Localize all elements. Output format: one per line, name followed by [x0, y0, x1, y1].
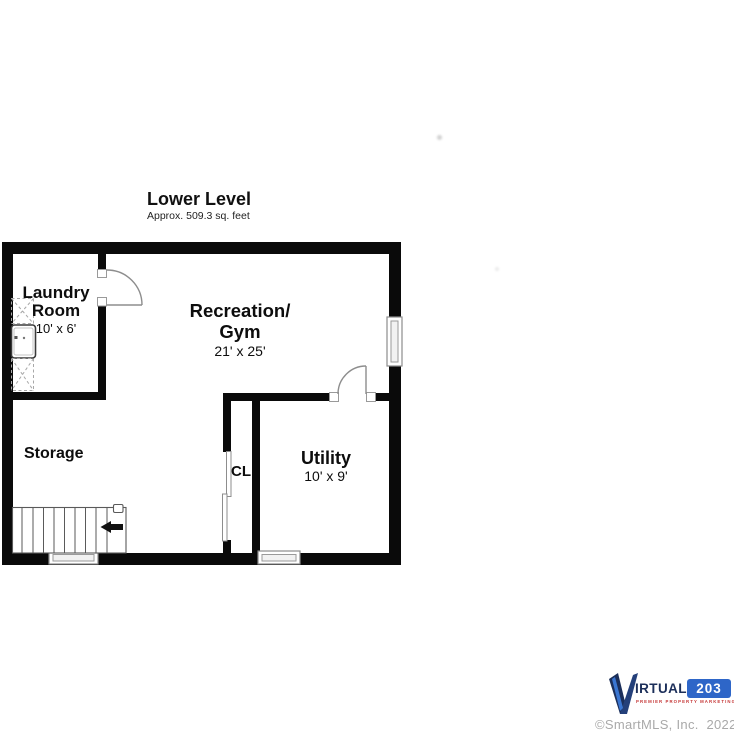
- floorplan-drawing: [0, 0, 734, 736]
- floorplan-page: Lower Level Approx. 509.3 sq. feet Laund…: [0, 0, 734, 736]
- utility-door-swing-arc: [338, 366, 366, 394]
- smudge-artifact: [437, 135, 442, 140]
- utility-door-jamb-left: [330, 393, 339, 402]
- room-label-closet: CL: [227, 463, 255, 480]
- closet-name: CL: [227, 463, 255, 480]
- sliding-door-panel-front: [223, 494, 228, 541]
- room-label-recreation: Recreation/ Gym 21' x 25': [158, 300, 322, 359]
- storage-name: Storage: [24, 445, 94, 463]
- stair-newel-post: [114, 505, 124, 513]
- plan-title: Lower Level: [147, 189, 251, 210]
- laundry-name-line2: Room: [12, 302, 100, 320]
- copyright-text: ©SmartMLS, Inc. 2022: [595, 717, 734, 732]
- recreation-name-line1: Recreation/: [158, 300, 322, 321]
- room-label-utility: Utility 10' x 9': [276, 448, 376, 484]
- utility-dimensions: 10' x 9': [276, 468, 376, 484]
- room-label-laundry: Laundry Room 10' x 6': [12, 284, 100, 336]
- plan-subtitle: Approx. 509.3 sq. feet: [147, 210, 250, 222]
- laundry-wall-bottom: [13, 392, 106, 400]
- counter-hatch-bottom: [12, 359, 34, 391]
- laundry-name-line1: Laundry: [12, 284, 100, 302]
- smudge-artifact: [495, 267, 499, 271]
- window-right-wall: [387, 317, 402, 366]
- wall-right: [389, 242, 401, 565]
- laundry-wall-upper: [98, 252, 106, 270]
- utility-door-jamb-right: [367, 393, 376, 402]
- virtual203-logo: IRTUAL 203 PREMIER PROPERTY MARKETING: [604, 669, 734, 717]
- utility-name: Utility: [276, 448, 376, 468]
- closet-left-wall: [223, 400, 231, 452]
- stairs: [13, 505, 127, 554]
- logo-v-icon: [606, 670, 638, 716]
- logo-tagline: PREMIER PROPERTY MARKETING: [636, 700, 734, 704]
- utility-door-right-wall: [375, 393, 391, 401]
- logo-name: IRTUAL: [635, 681, 687, 696]
- recreation-name-line2: Gym: [158, 321, 322, 342]
- laundry-door-jamb-top: [98, 270, 107, 278]
- closet-left-wall-stub: [223, 540, 231, 554]
- recreation-dimensions: 21' x 25': [158, 342, 322, 359]
- closet-utility-top-wall: [223, 393, 330, 401]
- wall-top: [2, 242, 401, 254]
- window-bottom-utility: [258, 551, 300, 564]
- room-label-storage: Storage: [24, 445, 94, 463]
- laundry-dimensions: 10' x 6': [12, 320, 100, 336]
- logo-number-badge: 203: [687, 679, 731, 698]
- laundry-door-swing-arc: [107, 270, 142, 305]
